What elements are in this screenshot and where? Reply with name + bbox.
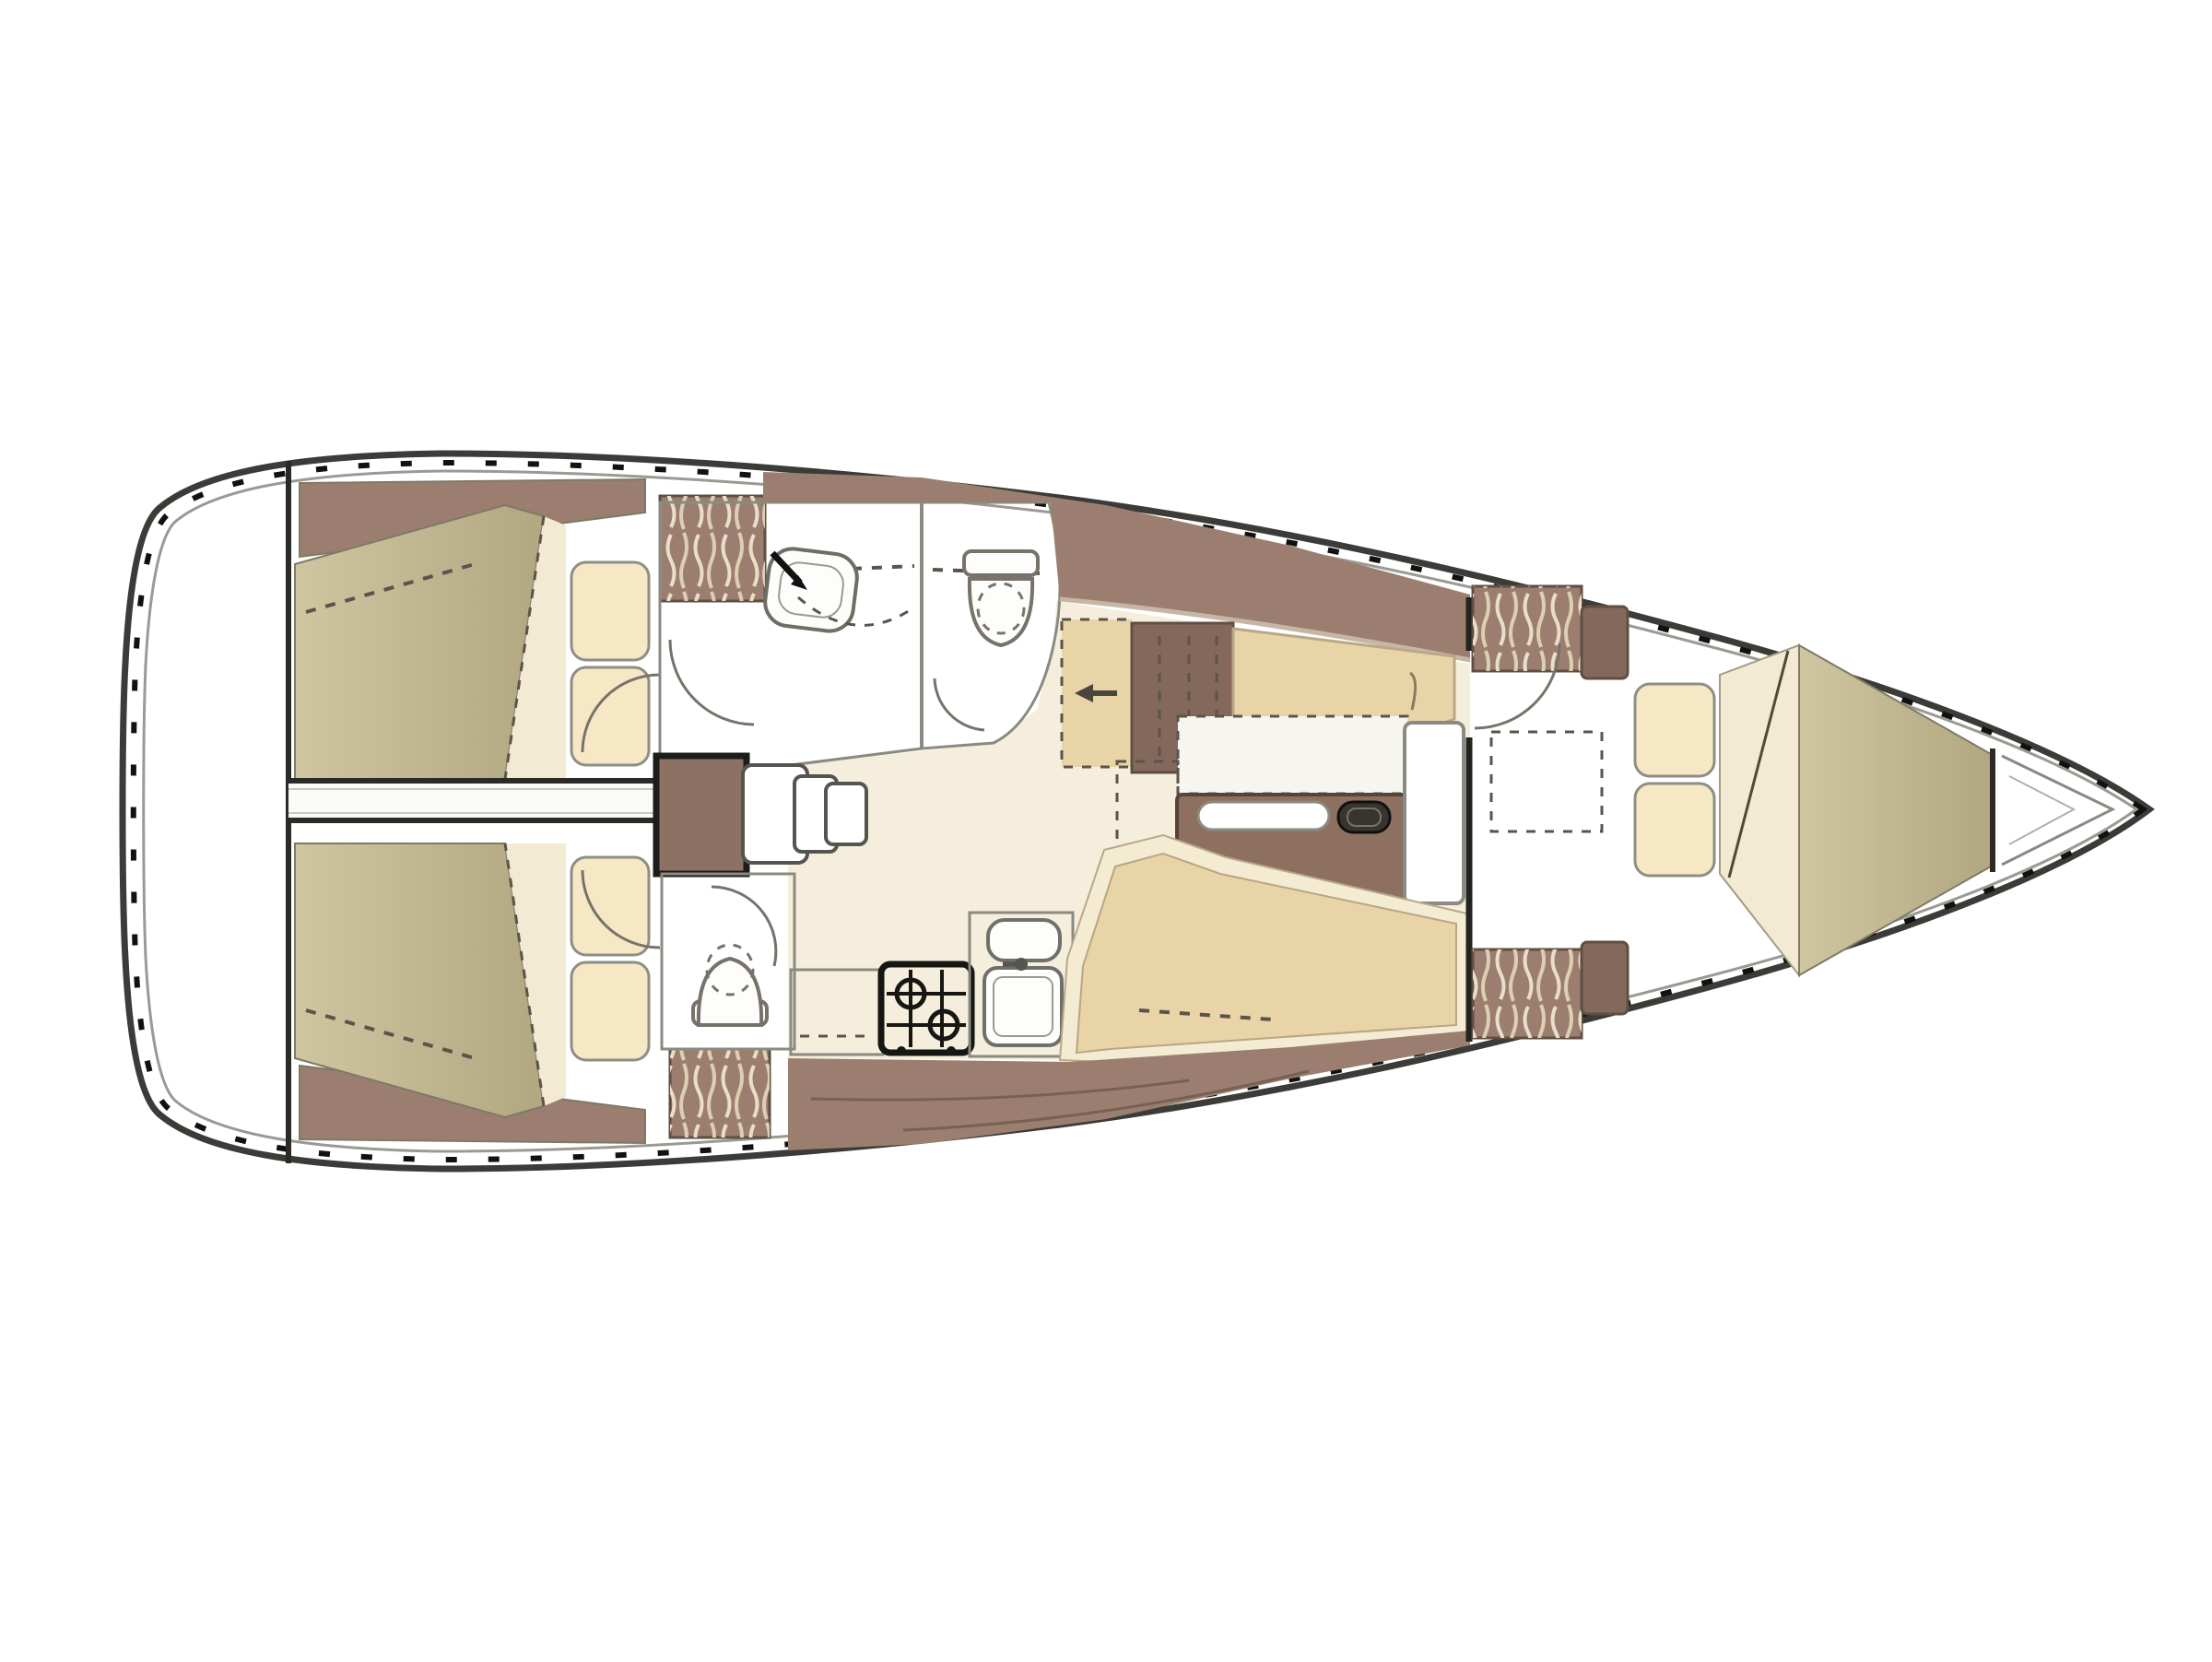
aft-cabin-starboard-pillow-2: [571, 962, 649, 1060]
forward-locker-port-hangers: [1473, 586, 1582, 671]
stern-corridor: [288, 779, 662, 822]
forward-locker-starboard-block: [1582, 942, 1628, 1014]
galley-sink-round: [988, 920, 1060, 961]
aft-cabin-port-pillow-1: [571, 562, 649, 660]
table-leaf-folded-area: [1178, 716, 1407, 794]
table-fiddle-rail: [1198, 802, 1329, 830]
table-inset-tray: [1338, 802, 1390, 832]
corridor-floor: [288, 779, 662, 822]
table-leaf-upright: [1405, 723, 1464, 903]
page: [0, 0, 2212, 1662]
engine-box: [656, 756, 747, 874]
aft-cabin-port-hanging-locker-hangers: [660, 496, 765, 601]
vberth-pillow-2: [1635, 784, 1714, 876]
settee-port-chaise: [1062, 619, 1132, 767]
aft-cabin-starboard-hanging-locker-hangers: [670, 1049, 770, 1137]
vberth-pillow-1: [1635, 684, 1714, 776]
forward-locker-port-block: [1582, 607, 1628, 678]
forward-locker-starboard-hangers: [1473, 949, 1582, 1038]
sailboat-floorplan-diagram: [0, 0, 2212, 1662]
companionway-step-3: [826, 784, 866, 844]
